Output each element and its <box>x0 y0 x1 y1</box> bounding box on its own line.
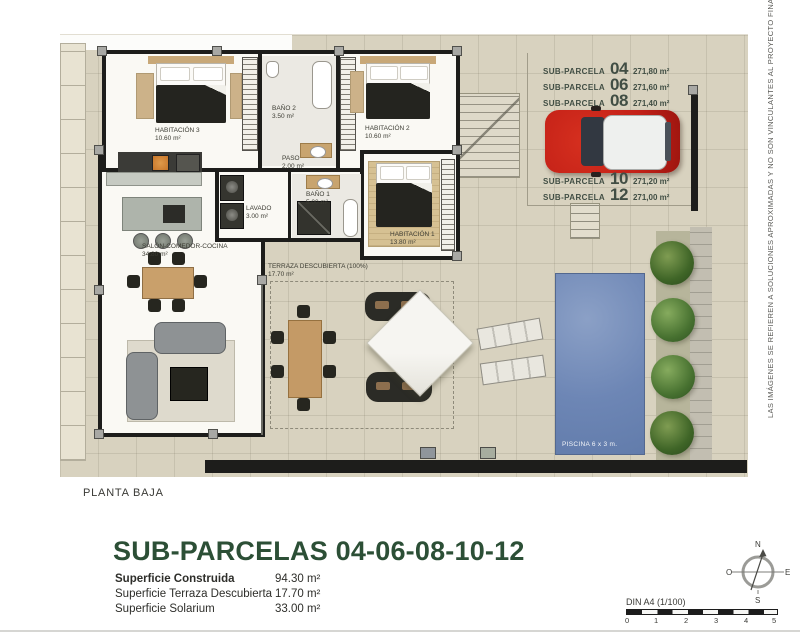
room-area: 5.00 m² <box>306 199 330 207</box>
vanity <box>300 143 332 158</box>
room-name: PASO <box>282 155 304 163</box>
room-label: BAÑO 15.00 m² <box>306 191 330 208</box>
disclaimer-note: LAS IMÁGENES SE REFIEREN A SOLUCIONES AP… <box>766 0 775 418</box>
car-roof <box>603 115 667 170</box>
floor-plan: PISCINA 6 x 3 m. SUB-PARCELA 04 271,80 m… <box>60 34 748 477</box>
room-area: 10.60 m² <box>155 135 200 143</box>
room-name: HABITACIÓN 1 <box>390 231 435 239</box>
outdoor-chair <box>297 305 310 318</box>
parking-boundary-line-h <box>527 205 691 206</box>
dining-table <box>142 267 194 299</box>
pillar <box>97 46 107 56</box>
vanity <box>306 175 340 189</box>
scale-tick: 2 <box>684 616 688 625</box>
pillar <box>212 46 222 56</box>
bed-pillow <box>193 67 223 81</box>
sink <box>317 178 333 189</box>
parking-boundary-line-v <box>527 53 528 206</box>
bed-pillow <box>370 66 398 80</box>
sofa-cushion <box>375 301 389 309</box>
surface-row: Superficie Construida 94.30 m² <box>115 573 375 585</box>
bedside-rug <box>230 73 242 119</box>
scale-tick: 0 <box>625 616 629 625</box>
bed-blanket <box>376 183 432 227</box>
compass-rose: N E S O <box>726 538 790 604</box>
bed-blanket <box>366 83 430 119</box>
dryer-door <box>226 209 238 221</box>
room-area: 34.80 m² <box>142 251 228 259</box>
outdoor-chair <box>271 365 284 378</box>
surface-row: Superficie Solarium 33.00 m² <box>115 603 375 615</box>
pillar <box>452 145 462 155</box>
partition <box>288 172 291 240</box>
dryer <box>220 203 244 229</box>
car <box>545 110 680 173</box>
outdoor-chair <box>297 398 310 411</box>
surface-value: 17.70 m² <box>275 588 320 600</box>
pillar <box>208 429 218 439</box>
room-label: BAÑO 23.50 m² <box>272 105 296 122</box>
subparcela-number: 08 <box>610 91 628 111</box>
tree-icon <box>650 241 694 285</box>
room-area: 2.00 m² <box>282 163 304 171</box>
room-label: HABITACIÓN 113.80 m² <box>390 231 435 248</box>
page-bottom-rule <box>0 630 800 632</box>
room-label: LAVADO3.00 m² <box>246 205 271 222</box>
pillar <box>452 46 462 56</box>
room-name: HABITACIÓN 3 <box>155 127 200 135</box>
subparcela-label: SUB-PARCELA <box>543 99 605 108</box>
room-name: BAÑO 1 <box>306 191 330 199</box>
surface-row: Superficie Terraza Descubierta 17.70 m² <box>115 588 375 600</box>
pool-label: PISCINA 6 x 3 m. <box>562 441 617 448</box>
surface-value: 94.30 m² <box>275 573 320 585</box>
outdoor-chair <box>271 331 284 344</box>
salon-glass-wall <box>261 275 263 435</box>
floor-label: PLANTA BAJA <box>83 487 164 499</box>
dining-chair <box>194 275 207 288</box>
room-name: SALÓN-COMEDOR-COCINA <box>142 243 228 251</box>
page-title: SUB-PARCELAS 04-06-08-10-12 <box>113 536 525 567</box>
wardrobe <box>441 159 455 251</box>
room-label: PASO2.00 m² <box>282 155 304 172</box>
toilet <box>266 61 279 78</box>
bed-pillow <box>406 166 430 180</box>
kitchen-tall-units <box>118 152 202 172</box>
scale-tick: 4 <box>744 616 748 625</box>
outdoor-dining-table <box>288 320 322 398</box>
fridge <box>176 154 200 172</box>
room-name: LAVADO <box>246 205 271 213</box>
car-windshield <box>581 117 605 166</box>
dining-chair <box>172 299 185 312</box>
scale-tick: 1 <box>654 616 658 625</box>
boundary-wall-right <box>691 93 698 211</box>
room-area: 17.70 m² <box>268 271 368 279</box>
scale-tick: 3 <box>714 616 718 625</box>
pool-steps <box>570 203 600 239</box>
pillar <box>257 275 267 285</box>
surface-label: Superficie Terraza Descubierta <box>115 588 275 600</box>
washer-door <box>226 181 238 193</box>
dining-chair <box>127 275 140 288</box>
surface-value: 33.00 m² <box>275 603 320 615</box>
scale-label: DIN A4 (1/100) <box>626 597 778 607</box>
bed-pillow <box>400 66 428 80</box>
pillar <box>688 85 698 95</box>
utility-box <box>480 447 496 459</box>
kitchen-counter <box>106 172 202 186</box>
utility-box <box>420 447 436 459</box>
coffee-table <box>170 367 208 401</box>
bed-pillow <box>160 67 190 81</box>
swimming-pool: PISCINA 6 x 3 m. <box>555 273 645 455</box>
bed-pillow <box>380 166 404 180</box>
room-label: SALÓN-COMEDOR-COCINA34.80 m² <box>142 243 228 260</box>
scale-bar: DIN A4 (1/100) 0 1 2 3 4 5 <box>626 597 778 625</box>
boundary-wall-bottom <box>205 460 747 473</box>
room-label: HABITACIÓN 210.60 m² <box>365 125 410 142</box>
pillar <box>94 429 104 439</box>
subparcela-number: 12 <box>610 185 628 205</box>
island-sink <box>163 205 185 223</box>
oven <box>152 155 169 171</box>
bedside-rug <box>350 71 364 113</box>
kitchen-island <box>122 197 202 231</box>
subparcela-area: 271,00 m² <box>633 193 669 202</box>
subparcela-area: 271,40 m² <box>633 99 669 108</box>
sun-lounger <box>477 318 544 351</box>
washer <box>220 175 244 201</box>
sun-lounger <box>480 355 546 386</box>
tree-icon <box>651 298 695 342</box>
bathtub <box>312 61 332 109</box>
room-label: HABITACIÓN 310.60 m² <box>155 127 200 144</box>
entry-walkway <box>60 43 86 461</box>
compass-o: O <box>726 568 732 577</box>
compass-n: N <box>755 540 761 549</box>
pillar <box>94 285 104 295</box>
sofa <box>154 322 226 354</box>
subparcela-row: SUB-PARCELA 08 271,40 m² <box>543 91 669 111</box>
outdoor-chair <box>323 331 336 344</box>
room-name: HABITACIÓN 2 <box>365 125 410 133</box>
room-area: 3.00 m² <box>246 213 271 221</box>
sink <box>310 146 326 158</box>
subparcela-row: SUB-PARCELA 12 271,00 m² <box>543 185 669 205</box>
room-area: 10.60 m² <box>365 133 410 141</box>
dining-chair <box>148 299 161 312</box>
compass-e: E <box>785 568 790 577</box>
room-area: 3.50 m² <box>272 113 296 121</box>
room-label: TERRAZA DESCUBIERTA (100%)17.70 m² <box>268 263 368 280</box>
car-rear-window <box>665 122 671 161</box>
bathtub <box>343 199 358 237</box>
tree-icon <box>651 355 695 399</box>
plan-top-white-margin <box>60 35 292 50</box>
bedside-rug <box>136 73 154 119</box>
partition <box>258 53 262 169</box>
surface-label: Superficie Construida <box>115 573 275 585</box>
outdoor-chair <box>323 365 336 378</box>
pillar <box>452 251 462 261</box>
pillar <box>334 46 344 56</box>
tree-icon <box>650 411 694 455</box>
pillar <box>94 145 104 155</box>
sofa <box>126 352 158 420</box>
wardrobe <box>242 57 258 151</box>
sofa-cushion <box>376 382 390 390</box>
room-name: TERRAZA DESCUBIERTA (100%) <box>268 263 368 271</box>
page: { "side_note": "LAS IMÁGENES SE REFIEREN… <box>0 0 800 640</box>
surface-label: Superficie Solarium <box>115 603 275 615</box>
room-area: 13.80 m² <box>390 239 435 247</box>
bed-blanket <box>156 85 226 123</box>
room-name: BAÑO 2 <box>272 105 296 113</box>
subparcela-label: SUB-PARCELA <box>543 193 605 202</box>
scale-tick: 5 <box>772 616 776 625</box>
scale-ticks: 0 1 2 3 4 5 <box>626 615 778 625</box>
